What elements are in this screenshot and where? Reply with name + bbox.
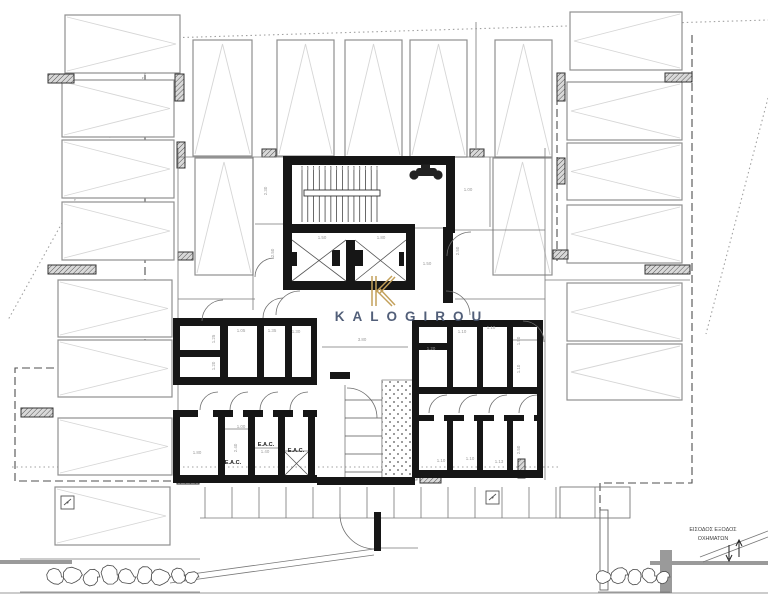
door-swing-arc — [347, 388, 377, 418]
stair-tread-number-mark — [302, 167, 303, 170]
parking-stall — [58, 418, 172, 475]
parking-stall — [65, 15, 180, 73]
dimension-label: 1.05 — [237, 328, 246, 333]
dimension-label: 1.10 — [458, 329, 467, 334]
parking-stall — [345, 40, 402, 157]
parking-stall-outline — [62, 202, 174, 260]
wall-segment — [399, 252, 404, 266]
wall-segment — [507, 327, 513, 389]
wall-segment — [173, 350, 228, 357]
wall-segment — [477, 327, 483, 389]
door-swing-arc — [276, 291, 300, 315]
parking-stall — [277, 40, 334, 156]
door-swing-arc — [290, 392, 308, 410]
dimension-label: 1.80 — [377, 235, 386, 240]
dimension-label: 1.35 — [268, 328, 277, 333]
bush — [171, 568, 185, 583]
stair-handrail — [304, 190, 380, 196]
parking-stall-outline — [495, 40, 552, 157]
door-swing-arc — [340, 514, 374, 549]
door-swing-arc — [519, 395, 537, 413]
wall-segment — [283, 281, 415, 290]
stair-tread-number-mark — [342, 167, 343, 170]
wall-segment — [283, 224, 415, 233]
dimension-label: 1.20 — [427, 346, 436, 351]
stair-tread-number-mark — [353, 167, 354, 170]
wall-segment — [278, 410, 285, 480]
stair-tread-number-mark — [330, 167, 331, 170]
column-hatched — [262, 149, 276, 157]
watermark-brand-text: KALOGIROU — [335, 309, 490, 324]
wall-segment — [332, 250, 340, 266]
entrance-note-line1: ΕΙΣΟΔΟΣ ΕΞΟΔΟΣ — [689, 527, 737, 533]
dimension-label: 1.10 — [516, 364, 521, 373]
floor-plan-drawing: 3.801.251.051.351.301.201.002.401.801.40… — [0, 0, 768, 610]
parking-stall-outline — [567, 143, 682, 200]
dimension-label: 1.10 — [487, 325, 496, 330]
parking-stall — [567, 283, 682, 341]
door-swing-arc — [459, 395, 477, 413]
dimension-label: 1.80 — [193, 450, 202, 455]
dimension-label: 2.30 — [263, 186, 268, 195]
wall-segment — [447, 327, 453, 389]
bush — [63, 567, 82, 583]
stair-tread-number-mark — [325, 167, 326, 170]
partition-line — [170, 555, 374, 583]
column-hatched — [178, 252, 193, 260]
parking-stall-outline — [65, 15, 180, 73]
wall-segment — [173, 410, 180, 483]
motorcycle-icon — [409, 165, 442, 180]
door-swing-arc — [200, 392, 218, 410]
stair-tread-number-mark — [371, 167, 372, 170]
parking-stall — [567, 344, 682, 400]
door-swing-arc — [260, 392, 278, 410]
wall-segment — [283, 156, 455, 165]
entrance-note-line2: ΟΧΗΜΑΤΩΝ — [698, 536, 729, 542]
parking-stall-outline — [58, 340, 172, 397]
parking-stalls — [55, 12, 682, 545]
wall-segment — [173, 475, 317, 483]
parking-stall-outline — [277, 40, 334, 156]
parking-stall-outline — [410, 40, 467, 157]
column-hatched — [470, 149, 484, 157]
bush — [101, 565, 118, 584]
wall-segment — [412, 387, 543, 394]
column-hatched — [48, 74, 74, 83]
bush — [611, 568, 628, 584]
stair-tread-number-mark — [365, 167, 366, 170]
landscape-bushes — [47, 565, 670, 586]
column-hatched — [557, 73, 565, 101]
parking-stall-outline — [567, 344, 682, 400]
wall-segment — [220, 377, 317, 385]
dimension-label: 3.80 — [358, 337, 367, 342]
bush — [185, 572, 199, 584]
column-hatched — [48, 265, 96, 274]
stair-tread-number-mark — [348, 167, 349, 170]
stair-tread-number-mark — [359, 167, 360, 170]
floorplan-page: 3.801.251.051.351.301.201.002.401.801.40… — [0, 0, 768, 610]
wall-segment — [537, 320, 543, 478]
wall-segment — [346, 240, 355, 281]
door-swing-arc — [489, 395, 507, 413]
column-hatched — [175, 74, 184, 101]
plan-symbol-marker — [61, 496, 74, 509]
dimension-label: 1.00 — [464, 187, 473, 192]
parking-stall — [58, 340, 172, 397]
parking-stall-outline — [570, 12, 682, 70]
driveway-strip — [205, 487, 630, 518]
dimension-label: 1.00 — [237, 424, 246, 429]
wall-segment — [308, 410, 315, 480]
parking-stall — [62, 140, 174, 198]
wall-segment — [446, 156, 455, 233]
parking-stall — [493, 158, 552, 275]
stair-tread-number-mark — [307, 167, 308, 170]
bush — [596, 571, 611, 584]
parking-stall-outline — [493, 158, 552, 275]
column-hatched — [645, 265, 690, 274]
door-swing-arc — [429, 395, 447, 413]
parking-stall — [193, 40, 252, 156]
parking-stall — [567, 205, 682, 263]
parking-stall — [567, 143, 682, 200]
wall-segment — [355, 250, 363, 266]
parking-stall-outline — [345, 40, 402, 157]
wall-segment — [317, 477, 415, 485]
plan-symbol-dot — [492, 497, 494, 499]
column-hatched — [557, 158, 565, 184]
wall-segment — [285, 318, 292, 380]
plan-symbol-marker — [486, 491, 499, 504]
parking-stall-outline — [567, 82, 682, 140]
wall-segment — [412, 320, 419, 387]
wall-segment — [292, 252, 297, 266]
bush — [137, 567, 152, 584]
parking-stall — [195, 158, 253, 275]
stair-tread-number-mark — [319, 167, 320, 170]
dimension-label: 1.50 — [318, 235, 327, 240]
wall-segment — [173, 318, 317, 326]
column-hatched — [21, 408, 53, 417]
road-edge-bar — [0, 560, 72, 564]
wall-segment — [507, 415, 513, 475]
bush — [642, 568, 657, 583]
wall-segment — [283, 156, 292, 233]
partition-line — [700, 531, 768, 557]
dimension-label: 1.25 — [211, 334, 216, 343]
wall-segment — [477, 415, 483, 475]
bush — [151, 569, 170, 585]
parking-stall-outline — [193, 40, 252, 156]
partition-line — [170, 549, 374, 577]
dimension-label: 1.30 — [292, 329, 301, 334]
ramp-stippled-area — [382, 380, 417, 480]
parking-stall — [570, 12, 682, 70]
dimension-label: 1.10 — [437, 458, 446, 463]
parking-stall — [567, 82, 682, 140]
parking-stall-outline — [58, 418, 172, 475]
storage-room-label: E.A.C. — [258, 442, 275, 448]
site-dotted-line — [706, 98, 768, 334]
wall-segment — [330, 372, 350, 379]
dimension-label: 2.40 — [233, 443, 238, 452]
parking-stall-outline — [567, 205, 682, 263]
parking-stall — [410, 40, 467, 157]
door-swing-arc — [255, 258, 274, 277]
parking-stall-outline — [567, 283, 682, 341]
door-swing-arc — [230, 392, 248, 410]
dimension-label: 1.20 — [211, 361, 216, 370]
stair-tread-number-mark — [336, 167, 337, 170]
bush — [628, 570, 641, 585]
dimension-label: 1.10 — [466, 456, 475, 461]
wall-segment — [218, 410, 225, 480]
dimension-label: 2.50 — [270, 248, 275, 257]
column-hatched — [553, 250, 568, 259]
column-hatched — [665, 73, 692, 82]
wall-segment — [311, 318, 317, 385]
parking-stall — [62, 80, 174, 137]
storage-room-label: E.A.C. — [225, 460, 242, 466]
dimension-label: 1.50 — [516, 336, 521, 345]
bush — [83, 569, 100, 586]
parking-stall-outline — [195, 158, 253, 275]
dimension-label: 1.13 — [495, 459, 504, 464]
wall-segment — [248, 410, 255, 480]
dimension-label: 2.50 — [455, 246, 460, 255]
parking-stall — [58, 280, 172, 337]
parking-stall-outline — [62, 140, 174, 198]
wall-segment — [257, 318, 264, 380]
parking-stall — [62, 202, 174, 260]
wall-segment — [412, 387, 419, 478]
kalogirou-logo-icon — [372, 276, 395, 306]
wall-segment — [447, 415, 453, 475]
dimension-label: 1.50 — [423, 261, 432, 266]
door-swing-arc — [202, 300, 223, 321]
dimension-label: 1.40 — [261, 449, 270, 454]
wall-segment — [412, 470, 543, 478]
plan-symbol-dot — [67, 502, 69, 504]
stair-tread-number-mark — [377, 167, 378, 170]
wall-segment — [534, 415, 543, 421]
parking-stall-outline — [62, 80, 174, 137]
dimension-label: 2.50 — [516, 445, 521, 454]
stair-tread-number-mark — [313, 167, 314, 170]
wall-segment — [173, 377, 228, 385]
parking-stall — [495, 40, 552, 157]
storage-room-label: E.A.C. — [288, 448, 305, 454]
wall-segment — [374, 512, 381, 551]
bush — [119, 569, 136, 584]
parking-stall-outline — [58, 280, 172, 337]
bush — [47, 568, 64, 584]
